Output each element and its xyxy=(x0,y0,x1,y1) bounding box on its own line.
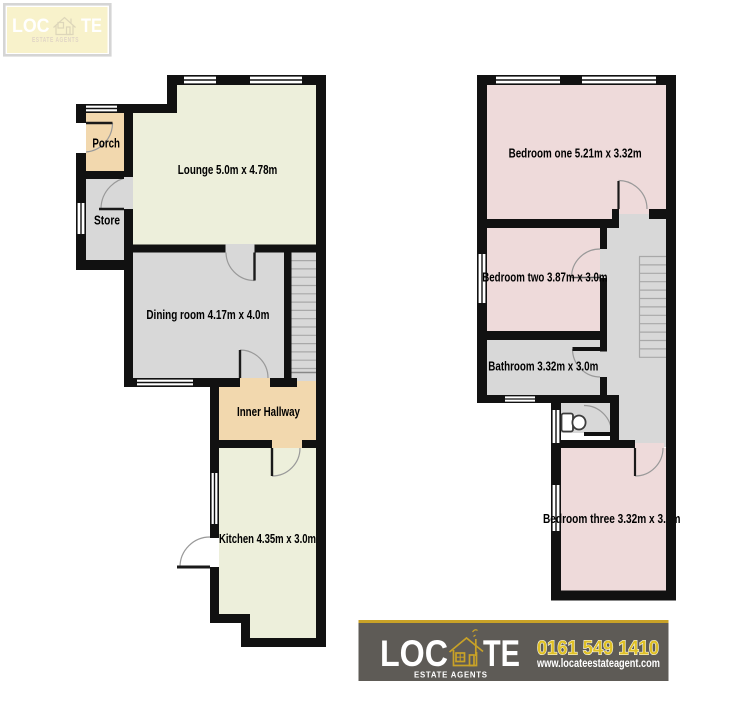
svg-text:ESTATE AGENTS: ESTATE AGENTS xyxy=(414,671,489,680)
svg-text:Kitchen 4.35m x 3.0m: Kitchen 4.35m x 3.0m xyxy=(219,531,316,546)
svg-text:TE: TE xyxy=(483,633,520,674)
svg-text:Bedroom three 3.32m x 3.3m: Bedroom three 3.32m x 3.3m xyxy=(543,511,681,526)
svg-text:Dining room 4.17m x 4.0m: Dining room 4.17m x 4.0m xyxy=(146,307,269,322)
svg-text:Store: Store xyxy=(94,213,120,228)
svg-text:Lounge 5.0m x 4.78m: Lounge 5.0m x 4.78m xyxy=(178,162,277,177)
svg-text:LOC: LOC xyxy=(12,16,50,37)
svg-text:Bedroom one 5.21m x 3.32m: Bedroom one 5.21m x 3.32m xyxy=(509,145,642,160)
svg-text:www.locateestateagent.com: www.locateestateagent.com xyxy=(536,656,660,670)
svg-text:LOC: LOC xyxy=(380,633,448,674)
svg-text:Inner Hallway: Inner Hallway xyxy=(237,404,301,419)
svg-text:Bathroom 3.32m x 3.0m: Bathroom 3.32m x 3.0m xyxy=(488,358,598,373)
svg-text:ESTATE AGENTS: ESTATE AGENTS xyxy=(32,37,79,44)
svg-text:TE: TE xyxy=(81,16,102,37)
svg-text:Porch: Porch xyxy=(92,136,120,151)
svg-text:Bedroom two 3.87m x 3.0m: Bedroom two 3.87m x 3.0m xyxy=(482,270,607,285)
